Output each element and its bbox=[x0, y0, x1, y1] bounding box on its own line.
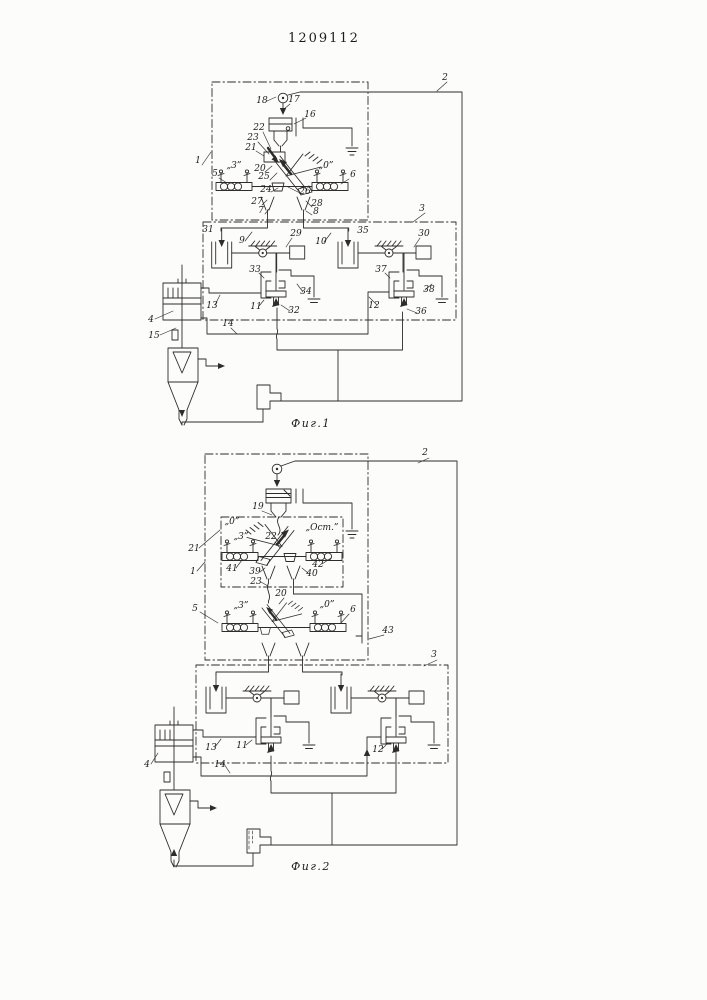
fig1-label-4-17: 17 bbox=[288, 95, 300, 105]
fig1-label-24-10: 10 bbox=[315, 237, 327, 247]
fig1-nozzle-pipes bbox=[221, 214, 349, 231]
fig1-label-0-1: 1 bbox=[195, 156, 201, 166]
fig2-pump-unit bbox=[155, 707, 217, 867]
fig1-label-15-0: „0” bbox=[319, 161, 334, 171]
fig2-label-6-21: 21 bbox=[187, 544, 199, 554]
fig2-frame-3 bbox=[196, 665, 448, 763]
fig1-label-34-12: 12 bbox=[368, 301, 380, 311]
fig1-label-5-16: 16 bbox=[304, 110, 316, 120]
fig2-actuator-left bbox=[206, 674, 299, 717]
fig2-electromagnet-5 bbox=[222, 611, 258, 632]
fig1-return-line bbox=[182, 422, 263, 425]
fig1-electromagnet-left bbox=[216, 170, 252, 191]
fig2-nozzle-left bbox=[262, 643, 275, 660]
fig1-label-21-31: 31 bbox=[202, 225, 213, 235]
fig1-label-27-33: 33 bbox=[249, 265, 261, 275]
fig1-label-22-9: 9 bbox=[239, 236, 245, 246]
fig1-label-18-7: 7 bbox=[258, 206, 264, 216]
fig2-label-8-Ост: „Ост.” bbox=[305, 523, 338, 533]
fig2-nozzle-pipes bbox=[216, 660, 342, 675]
fig2-hydraulic-lines bbox=[193, 730, 396, 845]
fig1-nozzle-right bbox=[297, 197, 310, 214]
fig2-label-21-11: 11 bbox=[236, 741, 247, 751]
fig1-valve-right bbox=[389, 253, 448, 307]
fig2-label-14-20: 20 bbox=[274, 589, 287, 599]
fig2-label-11-39: 39 bbox=[249, 567, 261, 577]
fig1-label-13-24: 24 bbox=[259, 185, 272, 195]
fig1-label-2-3: 3 bbox=[419, 204, 425, 214]
fig2-electromagnet-6 bbox=[310, 611, 346, 632]
fig1-caption: Фиг.1 bbox=[291, 417, 331, 430]
fig2-label-5-3: „3” bbox=[234, 532, 249, 542]
fig1-label-1-2: 2 bbox=[441, 73, 448, 83]
fig1-label-3-18: 18 bbox=[256, 96, 268, 106]
figure-1: Фиг.1 123181716222321„3”520252426„0”6277… bbox=[147, 73, 462, 430]
fig2-frame-2 bbox=[271, 461, 457, 845]
fig1-label-29-37: 37 bbox=[375, 265, 387, 275]
fig1-label-12-25: 25 bbox=[257, 172, 270, 182]
fig1-label-35-36: 36 bbox=[415, 307, 427, 317]
fig2-label-4-0: „0” bbox=[225, 517, 240, 527]
fig2-electromagnet-41 bbox=[222, 540, 258, 561]
fig1-label-26-30: 30 bbox=[418, 229, 430, 239]
fig2-label-20-13: 13 bbox=[205, 743, 217, 753]
fig1-label-20-8: 8 bbox=[313, 207, 319, 217]
fig1-label-10-5: 5 bbox=[212, 169, 218, 179]
fig2-label-19-43: 43 bbox=[381, 626, 394, 636]
fig2-nozzle-40 bbox=[287, 566, 300, 583]
fig2-bracket-dashes bbox=[249, 831, 253, 851]
fig1-electromagnet-right bbox=[312, 170, 348, 191]
patent-drawing: 1209112 Фиг.1 123181716222321„3”52025242… bbox=[0, 0, 707, 1000]
fig1-label-9-3: „3” bbox=[227, 161, 242, 171]
fig2-lever-lower bbox=[260, 601, 303, 638]
fig1-label-37-4: 4 bbox=[147, 315, 154, 325]
fig2-label-1-1: 1 bbox=[190, 567, 196, 577]
fig1-frame-2 bbox=[281, 92, 462, 401]
fig1-label-33-32: 32 bbox=[288, 306, 300, 316]
patent-page: 1209112 Фиг.1 123181716222321„3”52025242… bbox=[0, 0, 707, 1000]
fig2-flow-arrow-up bbox=[364, 749, 370, 756]
fig1-label-8-21: 21 bbox=[244, 143, 256, 153]
fig2-label-3-19: 19 bbox=[252, 502, 264, 512]
fig1-label-14-26: 26 bbox=[298, 187, 311, 197]
fig1-lever-mechanism bbox=[272, 152, 322, 195]
fig2-label-22-12: 12 bbox=[372, 745, 384, 755]
figure-2: Фиг.2 21319„0”„3”2122„Ост.”4142394023205… bbox=[143, 448, 457, 873]
fig2-label-2-3: 3 bbox=[431, 650, 437, 660]
fig1-label-25-35: 35 bbox=[357, 226, 369, 236]
fig1-pump-unit bbox=[163, 265, 225, 425]
fig2-label-23-4: 4 bbox=[143, 760, 150, 770]
fig1-pipe-bracket bbox=[257, 385, 281, 422]
fig1-label-16-6: 6 bbox=[350, 170, 356, 180]
fig2-caption: Фиг.2 bbox=[291, 860, 331, 873]
fig1-label-30-38: 38 bbox=[423, 285, 435, 295]
fig2-label-12-40: 40 bbox=[305, 569, 318, 579]
fig2-pipe-bracket bbox=[247, 829, 271, 866]
fig2-label-16-3: „3” bbox=[234, 601, 249, 611]
fig2-nozzle-right bbox=[296, 643, 309, 660]
fig1-tank bbox=[269, 118, 358, 155]
fig1-label-31-13: 13 bbox=[206, 301, 218, 311]
fig2-label-7-22: 22 bbox=[264, 532, 277, 542]
fig2-label-15-5: 5 bbox=[192, 604, 198, 614]
fig1-label-6-22: 22 bbox=[252, 123, 265, 133]
fig2-valve-right bbox=[381, 699, 440, 753]
fig2-gauge bbox=[272, 464, 282, 487]
fig2-suction-arrow-up bbox=[171, 849, 177, 856]
fig2-valve-left bbox=[256, 699, 315, 753]
fig2-electromagnet-42 bbox=[306, 540, 342, 561]
fig2-label-0-2: 2 bbox=[421, 448, 428, 458]
fig1-label-32-11: 11 bbox=[250, 302, 261, 312]
fig1-label-38-15: 15 bbox=[148, 331, 160, 341]
fig2-label-9-41: 41 bbox=[225, 564, 237, 574]
fig1-label-28-34: 34 bbox=[300, 287, 312, 297]
patent-number: 1209112 bbox=[288, 31, 360, 46]
fig1-gauge bbox=[278, 93, 288, 115]
fig2-actuator-right bbox=[331, 674, 424, 717]
fig2-label-13-23: 23 bbox=[249, 577, 262, 587]
fig1-valve-left bbox=[261, 253, 320, 307]
fig2-label-24-14: 14 bbox=[214, 760, 226, 770]
fig1-label-23-29: 29 bbox=[289, 229, 302, 239]
fig2-label-17-0: „0” bbox=[320, 600, 335, 610]
fig2-return-line bbox=[174, 860, 253, 866]
fig1-label-7-23: 23 bbox=[246, 133, 259, 143]
fig1-flow-arrow-down bbox=[179, 410, 185, 417]
fig2-label-18-6: 6 bbox=[350, 605, 356, 615]
fig1-label-36-14: 14 bbox=[222, 319, 234, 329]
